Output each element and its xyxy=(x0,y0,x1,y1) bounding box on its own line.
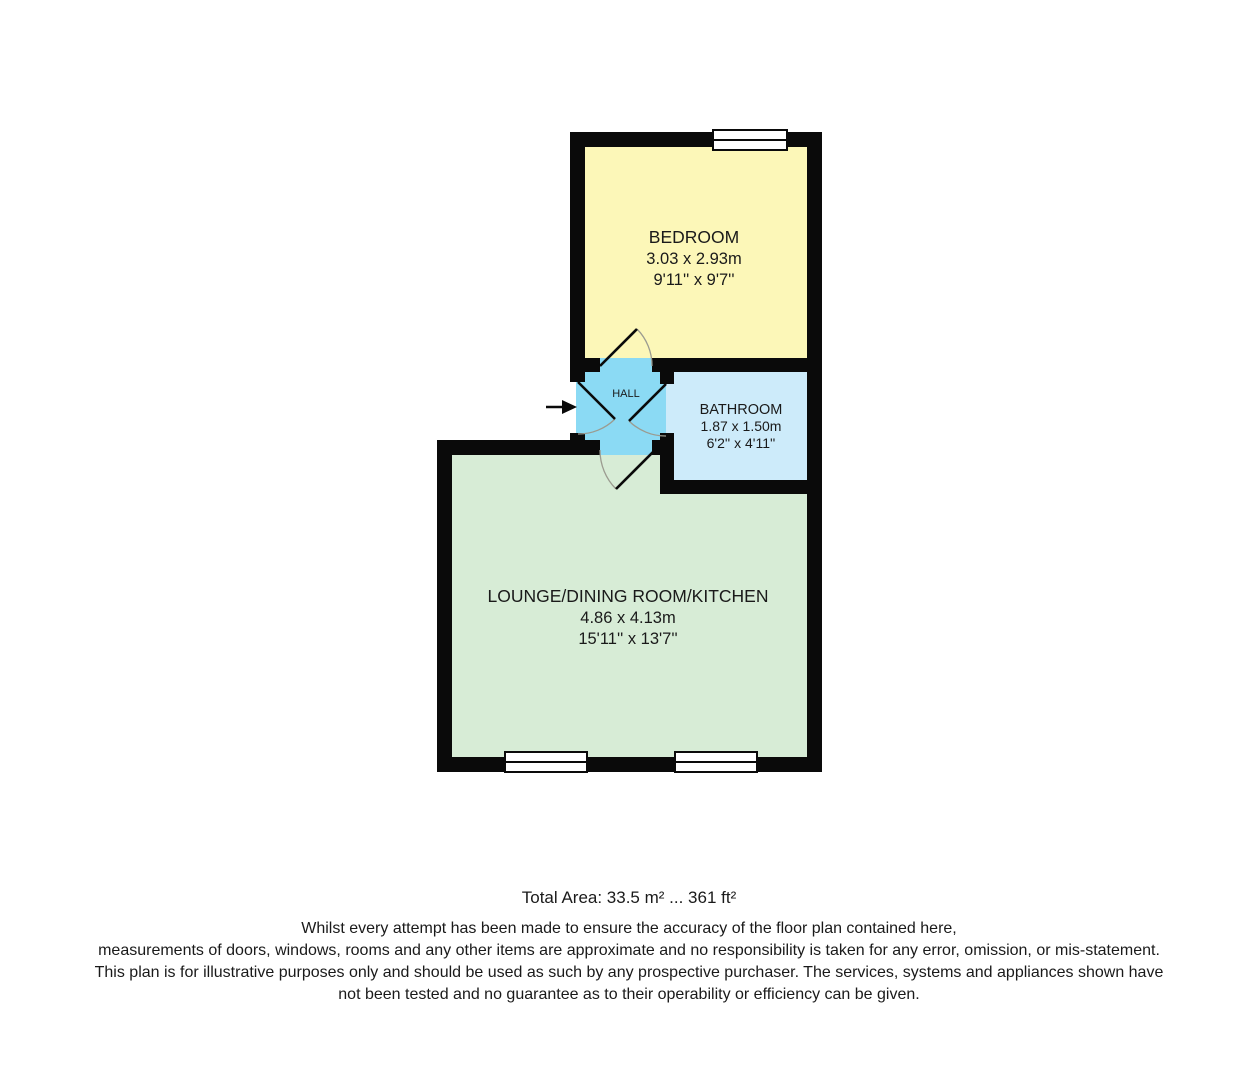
wall-lounge-door-stub xyxy=(652,440,667,455)
bedroom-size-metric: 3.03 x 2.93m xyxy=(646,250,741,268)
lounge-size-imperial: 15'11'' x 13'7'' xyxy=(578,630,677,648)
disclaimer-line-2: measurements of doors, windows, rooms an… xyxy=(0,940,1258,962)
lounge-window-right xyxy=(675,752,757,772)
disclaimer-line-3: This plan is for illustrative purposes o… xyxy=(0,962,1258,984)
wall-right-outer xyxy=(807,132,822,772)
bathroom-size-imperial: 6'2'' x 4'11'' xyxy=(707,435,776,451)
bedroom-window xyxy=(713,130,787,150)
wall-bedroom-left xyxy=(570,132,585,382)
entrance-arrow-icon xyxy=(546,400,577,414)
wall-lounge-top xyxy=(437,440,600,455)
wall-bedroom-hall-left xyxy=(570,358,600,372)
disclaimer-line-1: Whilst every attempt has been made to en… xyxy=(0,918,1258,940)
bedroom-size-imperial: 9'11'' x 9'7'' xyxy=(654,271,735,289)
disclaimer: Whilst every attempt has been made to en… xyxy=(0,918,1258,1006)
disclaimer-line-4: not been tested and no guarantee as to t… xyxy=(0,984,1258,1006)
wall-lounge-bottom xyxy=(437,757,822,772)
wall-lounge-left xyxy=(437,440,452,772)
lounge-window-left xyxy=(505,752,587,772)
wall-bedroom-hall-right xyxy=(652,358,807,372)
bedroom-name: BEDROOM xyxy=(649,227,739,247)
wall-bathroom-left-upper xyxy=(660,372,674,384)
bathroom-name: BATHROOM xyxy=(700,402,783,418)
lounge-floor xyxy=(452,455,807,757)
lounge-size-metric: 4.86 x 4.13m xyxy=(580,609,675,627)
total-area-text: Total Area: 33.5 m² ... 361 ft² xyxy=(0,888,1258,908)
lounge-name: LOUNGE/DINING ROOM/KITCHEN xyxy=(488,586,769,606)
wall-bathroom-bottom xyxy=(660,480,807,494)
bathroom-size-metric: 1.87 x 1.50m xyxy=(701,418,782,434)
hall-name: HALL xyxy=(612,388,640,400)
